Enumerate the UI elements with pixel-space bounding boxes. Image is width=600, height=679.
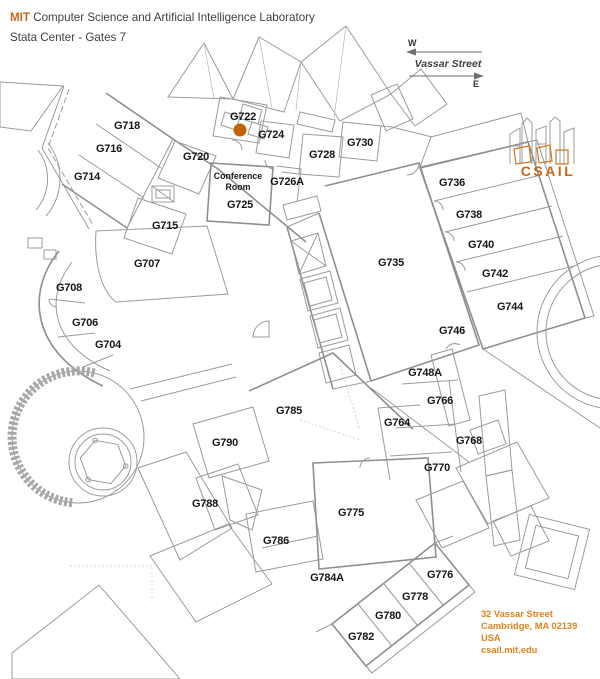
west-arrow-head-icon <box>406 49 416 56</box>
room-label-G708: G708 <box>56 282 82 294</box>
curved-wing-walls <box>39 226 228 386</box>
address-line-2: Cambridge, MA 02139 <box>481 621 577 631</box>
g728-g730-walls <box>282 122 432 177</box>
room-label-G716: G716 <box>96 143 122 155</box>
room-label-G740: G740 <box>468 239 494 251</box>
room-label-G766: G766 <box>427 395 453 407</box>
address-line-3: USA <box>481 633 501 643</box>
csail-logo-label: CSAIL <box>521 163 576 179</box>
conference-room-label-line-1: Conference <box>214 171 263 181</box>
room-label-G722: G722 <box>230 111 256 123</box>
room-label-G736: G736 <box>439 177 465 189</box>
room-label-G720: G720 <box>183 151 209 163</box>
address-block: 32 Vassar Street Cambridge, MA 02139 USA… <box>481 609 577 655</box>
location-marker-dot <box>234 124 247 137</box>
csail-logo: CSAIL <box>510 117 575 179</box>
room-label-G742: G742 <box>482 268 508 280</box>
room-label-G790: G790 <box>212 437 238 449</box>
central-south-walls <box>193 353 436 572</box>
bottom-right-structures <box>416 420 590 590</box>
room-label-G735: G735 <box>378 257 404 269</box>
east-circle <box>537 255 600 409</box>
stata-center-floor-plan: W Vassar Street E CSAIL MIT Computer Sci… <box>0 0 600 679</box>
room-label-G738: G738 <box>456 209 482 221</box>
room-label-G782: G782 <box>348 631 374 643</box>
room-label-G714: G714 <box>74 171 101 183</box>
room-label-G715: G715 <box>152 220 178 232</box>
room-label-G725: G725 <box>227 199 253 211</box>
room-label-G780: G780 <box>375 610 401 622</box>
conference-room-label-line-2: Room <box>226 182 251 192</box>
roof-hatched-structures <box>0 26 528 167</box>
room-label-G788: G788 <box>192 498 218 510</box>
room-label-G784A: G784A <box>310 572 344 584</box>
room-label-G748A: G748A <box>408 367 442 379</box>
compass-west-label: W <box>408 38 417 48</box>
room-label-G718: G718 <box>114 120 140 132</box>
header: MIT Computer Science and Artificial Inte… <box>10 11 315 44</box>
room-label-G775: G775 <box>338 507 364 519</box>
g722-conference-block-walls <box>207 97 306 242</box>
compass-east-label: E <box>473 79 479 89</box>
conference-room-label-group: ConferenceRoom <box>214 171 263 192</box>
room-label-G786: G786 <box>263 535 289 547</box>
room-label-G764: G764 <box>384 417 411 429</box>
page-title: MIT Computer Science and Artificial Inte… <box>10 11 315 24</box>
room-label-G778: G778 <box>402 591 428 603</box>
street-label: Vassar Street <box>415 58 482 70</box>
website-link[interactable]: csail.mit.edu <box>481 645 538 655</box>
room-label-G706: G706 <box>72 317 98 329</box>
room-label-G724: G724 <box>258 129 285 141</box>
room-label-G768: G768 <box>456 435 482 447</box>
room-label-G726A: G726A <box>270 176 304 188</box>
bottom-left-brick-structures <box>12 452 272 679</box>
room-label-G744: G744 <box>497 301 524 313</box>
room-label-G728: G728 <box>309 149 335 161</box>
room-label-G730: G730 <box>347 137 373 149</box>
room-label-G785: G785 <box>276 405 302 417</box>
room-label-group: G718G716G714G720G722G724G726AG725G715G72… <box>56 111 524 643</box>
page-subtitle: Stata Center - Gates 7 <box>10 31 126 44</box>
room-label-G704: G704 <box>95 339 122 351</box>
northwest-wing-walls <box>42 86 218 254</box>
compass: W Vassar Street E <box>406 38 484 89</box>
room-label-G770: G770 <box>424 462 450 474</box>
central-core-walls <box>253 196 371 389</box>
room-label-G776: G776 <box>427 569 453 581</box>
floor-plan-canvas: W Vassar Street E CSAIL MIT Computer Sci… <box>0 0 600 679</box>
room-label-G746: G746 <box>439 325 465 337</box>
room-label-G707: G707 <box>134 258 160 270</box>
amphitheater-circle <box>12 364 236 503</box>
address-line-1: 32 Vassar Street <box>481 609 553 619</box>
south-band-walls <box>316 536 475 673</box>
